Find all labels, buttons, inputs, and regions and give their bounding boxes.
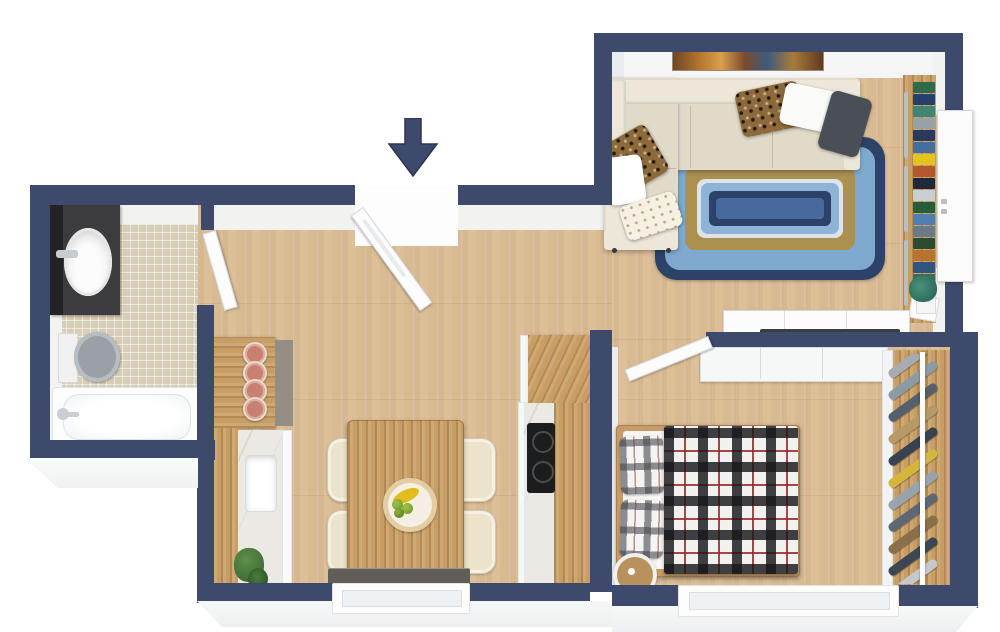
terrace-door-handle [941, 199, 947, 204]
entry-arrow-icon [385, 118, 441, 180]
bedroom-window-sill [689, 592, 890, 610]
terrace-door [937, 110, 973, 282]
bedroom-window [678, 585, 899, 617]
openings-layer [0, 0, 1000, 632]
bathroom-door [202, 230, 238, 311]
terrace-door-handle [941, 209, 947, 214]
floor-plan [0, 0, 1000, 632]
dining-window [332, 583, 470, 614]
bedroom-door [625, 336, 713, 382]
entry-door-panel-line [362, 219, 406, 278]
dining-window-sill [342, 590, 462, 607]
entry-door [351, 207, 432, 311]
